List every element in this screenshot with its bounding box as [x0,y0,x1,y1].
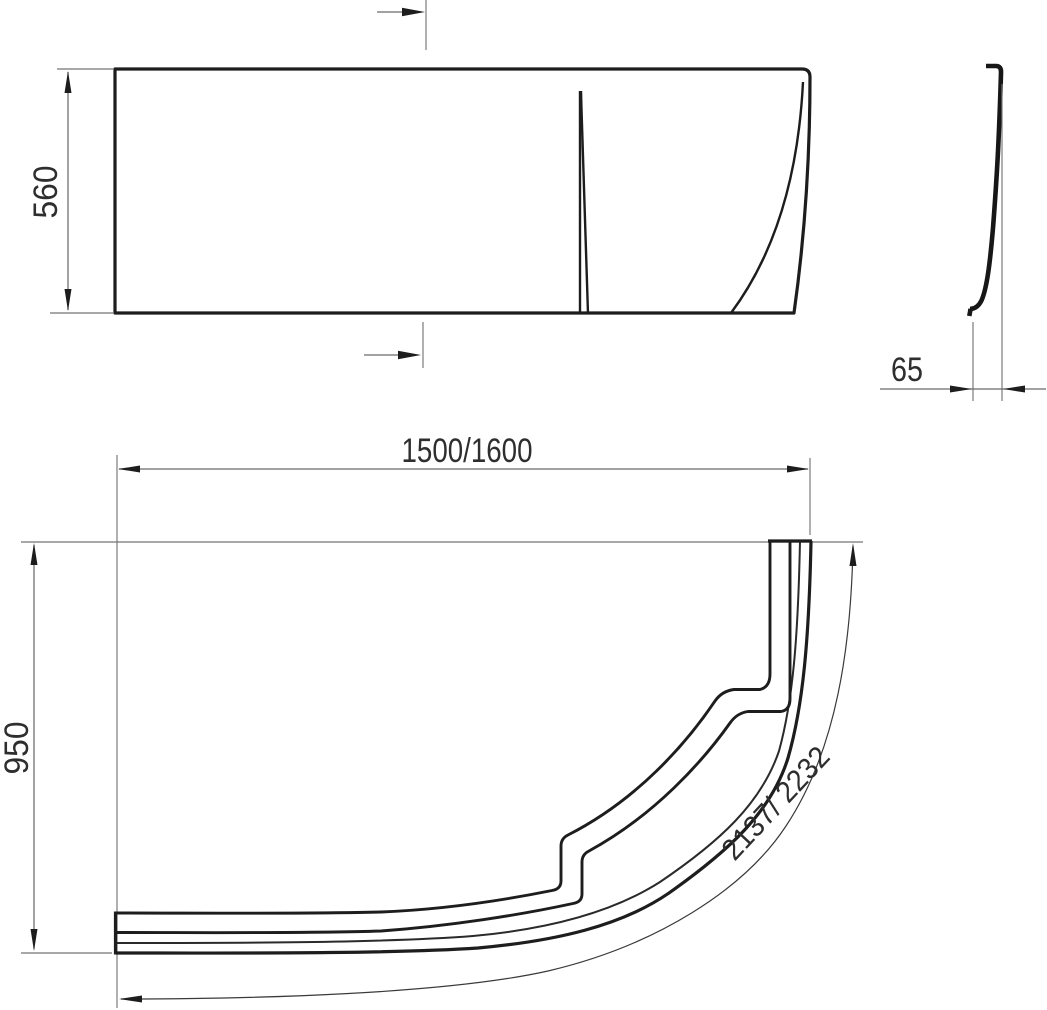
thickness-dimension-label: 65 [891,351,923,389]
dimension-depth-950: 950 [0,543,38,951]
depth-dimension-label: 950 [0,722,36,775]
front-seam-curve-left [581,91,588,314]
front-crease-curve-right [731,82,803,313]
plan-panel-band [116,541,813,955]
height-dimension-label: 560 [27,166,65,219]
band-rolled-edge-line [116,541,800,943]
panel-cross-section-profile [970,66,1001,309]
section-cut-arrow-bottom [364,322,423,368]
section-cut-arrow-top [377,0,426,50]
front-panel-outline [115,69,810,313]
drawing-sheet: 560 65 1500/1600 [0,0,1047,1010]
panel-profile-foot-tip [969,309,970,316]
dimension-thickness-65: 65 [880,84,1046,401]
front-elevation-view: 560 [27,0,810,368]
arc-dimension-line [121,546,853,999]
dimension-height-560: 560 [27,69,114,313]
plan-view: 1500/1600 950 2137/ 2 [0,432,863,1008]
dimension-width-1500-1600: 1500/1600 [118,432,809,473]
panel-dimension-diagram: 560 65 1500/1600 [0,0,1047,1010]
width-dimension-label: 1500/1600 [402,432,533,470]
band-inner-stepped-edge [116,541,770,913]
band-outer-edge [116,541,811,953]
side-profile-view: 65 [880,66,1046,401]
